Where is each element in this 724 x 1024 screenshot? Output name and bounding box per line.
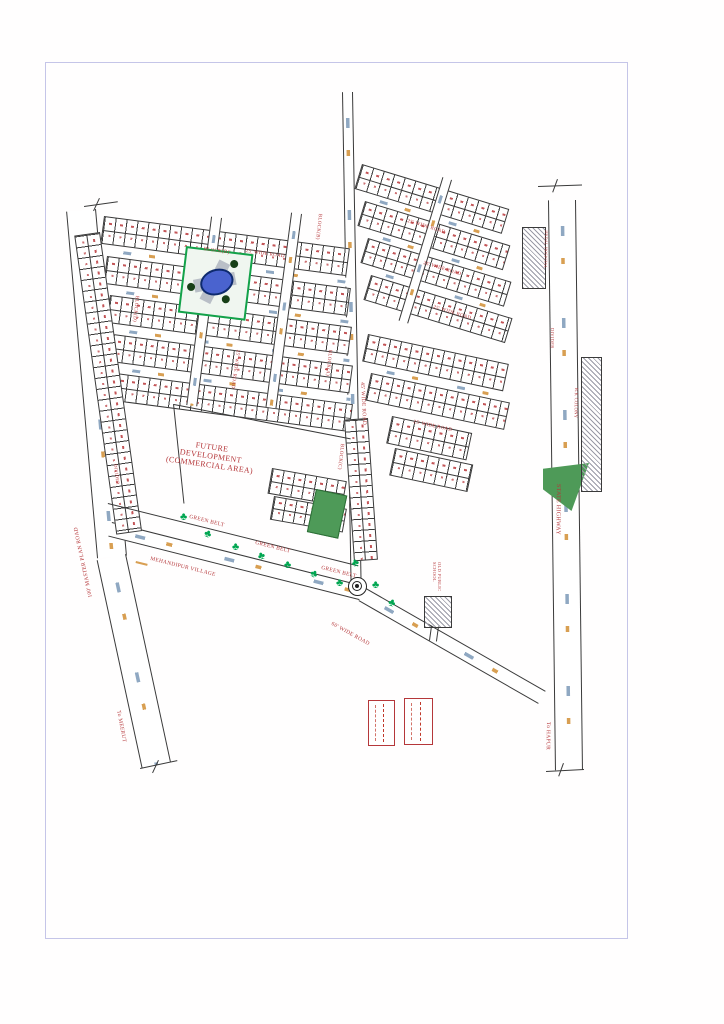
roundabout	[348, 577, 367, 596]
tree-icon: ♣	[180, 512, 187, 523]
tree-icon: ♣	[372, 580, 379, 591]
tree-icon: ♣	[336, 578, 343, 589]
tree-icon: ♣	[284, 560, 291, 571]
colony-building	[581, 357, 602, 492]
state-highway-label: STATE HIGHWAY	[554, 484, 561, 535]
to-hapur-label: To HAPUR	[544, 722, 551, 750]
legend-box	[368, 700, 395, 746]
park-tree-icon	[221, 295, 230, 304]
park-tree-icon	[230, 260, 239, 269]
tree-icon: ♣	[232, 542, 239, 553]
hospital-label: JINDAL HOSPITAL	[543, 230, 548, 268]
legend-box	[404, 698, 433, 745]
colony-label: R.K COLONY	[573, 388, 578, 418]
school-building	[424, 596, 452, 628]
school-label: OLD PUBLIC SCHOOL	[431, 562, 441, 598]
divider-label: DIVIDER	[549, 328, 554, 349]
park	[178, 246, 254, 321]
site-plan-canvas: ♣ ♣ ♣ ♣ ♣ ♣ ♣ ♣ ♣ ♣ FUTURE DEVELOPMENT (…	[0, 0, 724, 1024]
